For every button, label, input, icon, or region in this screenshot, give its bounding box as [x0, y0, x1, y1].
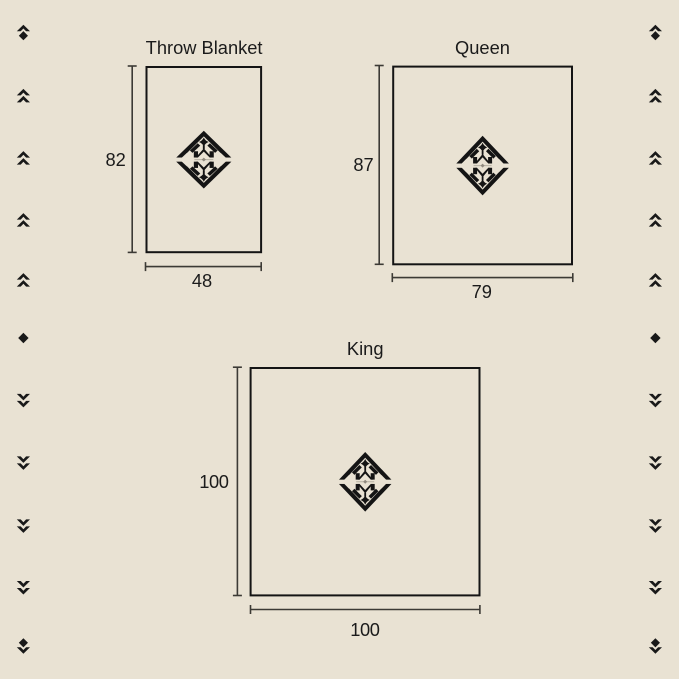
svg-text:King: King: [347, 338, 384, 359]
svg-text:100: 100: [350, 619, 380, 640]
svg-text:48: 48: [192, 270, 212, 291]
svg-text:82: 82: [106, 149, 126, 170]
svg-text:100: 100: [199, 471, 229, 492]
svg-text:Throw Blanket: Throw Blanket: [146, 37, 263, 58]
svg-text:79: 79: [472, 281, 492, 302]
svg-text:Queen: Queen: [455, 37, 510, 58]
svg-text:87: 87: [353, 154, 373, 175]
